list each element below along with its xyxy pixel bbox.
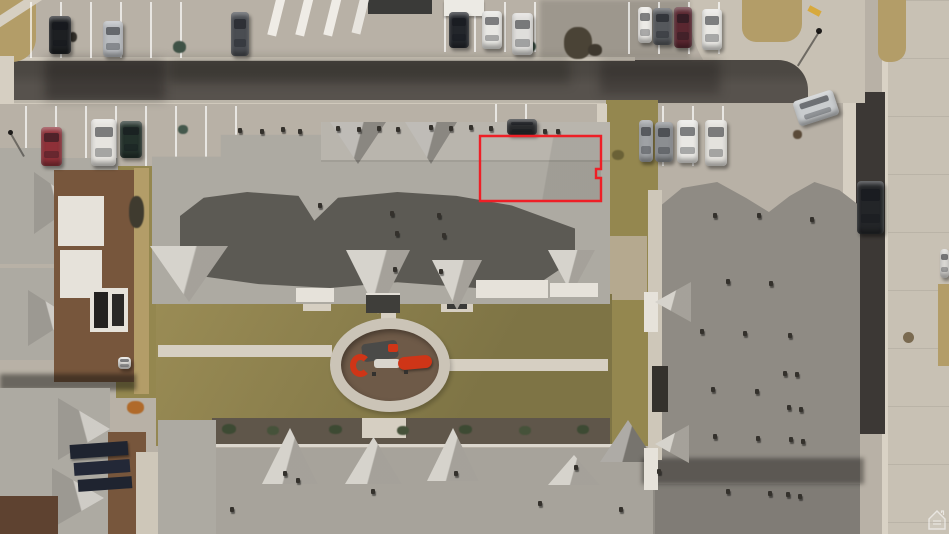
car	[507, 119, 537, 135]
car	[653, 8, 672, 45]
house-watermark-icon	[926, 508, 948, 532]
car	[118, 357, 131, 369]
car	[449, 12, 469, 48]
car	[702, 9, 722, 50]
aerial-photo	[0, 0, 949, 534]
car	[638, 7, 652, 43]
car	[857, 181, 884, 234]
car	[940, 249, 949, 278]
car	[792, 89, 840, 127]
car	[512, 13, 533, 55]
car	[103, 21, 123, 57]
car	[705, 120, 727, 166]
car	[674, 7, 692, 48]
car	[41, 127, 62, 166]
vehicles-layer	[0, 0, 949, 534]
car	[120, 121, 142, 158]
car	[231, 12, 249, 56]
car	[49, 16, 71, 54]
car	[639, 120, 653, 162]
car	[677, 120, 698, 163]
car	[482, 11, 502, 49]
car	[91, 119, 116, 166]
car	[655, 122, 673, 162]
